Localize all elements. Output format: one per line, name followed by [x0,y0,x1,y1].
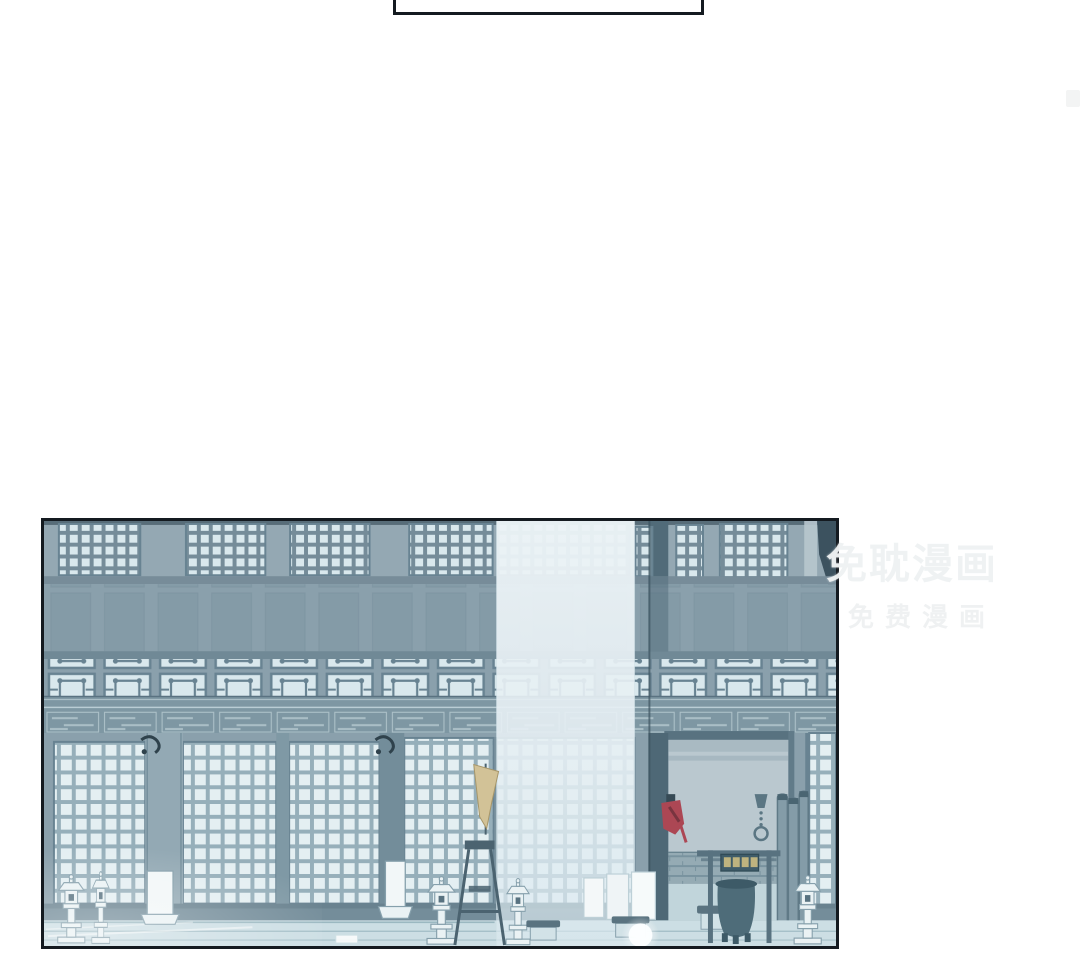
watermark-fragment [1066,90,1080,107]
watermark-line1: 免耽漫画 [826,530,998,590]
panel-artwork [44,521,836,946]
comic-panel [41,518,839,949]
watermark-line2: 免费漫画 [848,597,998,634]
haze-bottom-left [44,846,322,946]
site-watermark: 免耽漫画 免费漫画 [826,530,998,634]
top-partial-panel [393,0,704,15]
page-root: { "watermark": { "line1": "免耽漫画", "line2… [0,0,1080,980]
